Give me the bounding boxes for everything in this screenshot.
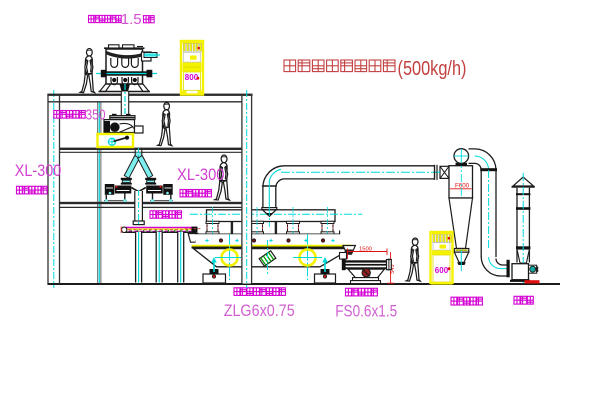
svg-text:XL-300: XL-300 bbox=[177, 166, 225, 184]
svg-text:1500: 1500 bbox=[359, 247, 372, 253]
svg-text:350: 350 bbox=[86, 107, 106, 124]
svg-text:XL-300: XL-300 bbox=[15, 162, 62, 180]
svg-text:1.5: 1.5 bbox=[121, 11, 142, 28]
svg-text:FS0.6x1.5: FS0.6x1.5 bbox=[335, 301, 397, 320]
svg-text:ZLG6x0.75: ZLG6x0.75 bbox=[224, 301, 295, 320]
svg-text:800: 800 bbox=[185, 73, 199, 82]
svg-text:(500kg/h): (500kg/h) bbox=[398, 58, 467, 80]
svg-text:600: 600 bbox=[435, 266, 449, 275]
